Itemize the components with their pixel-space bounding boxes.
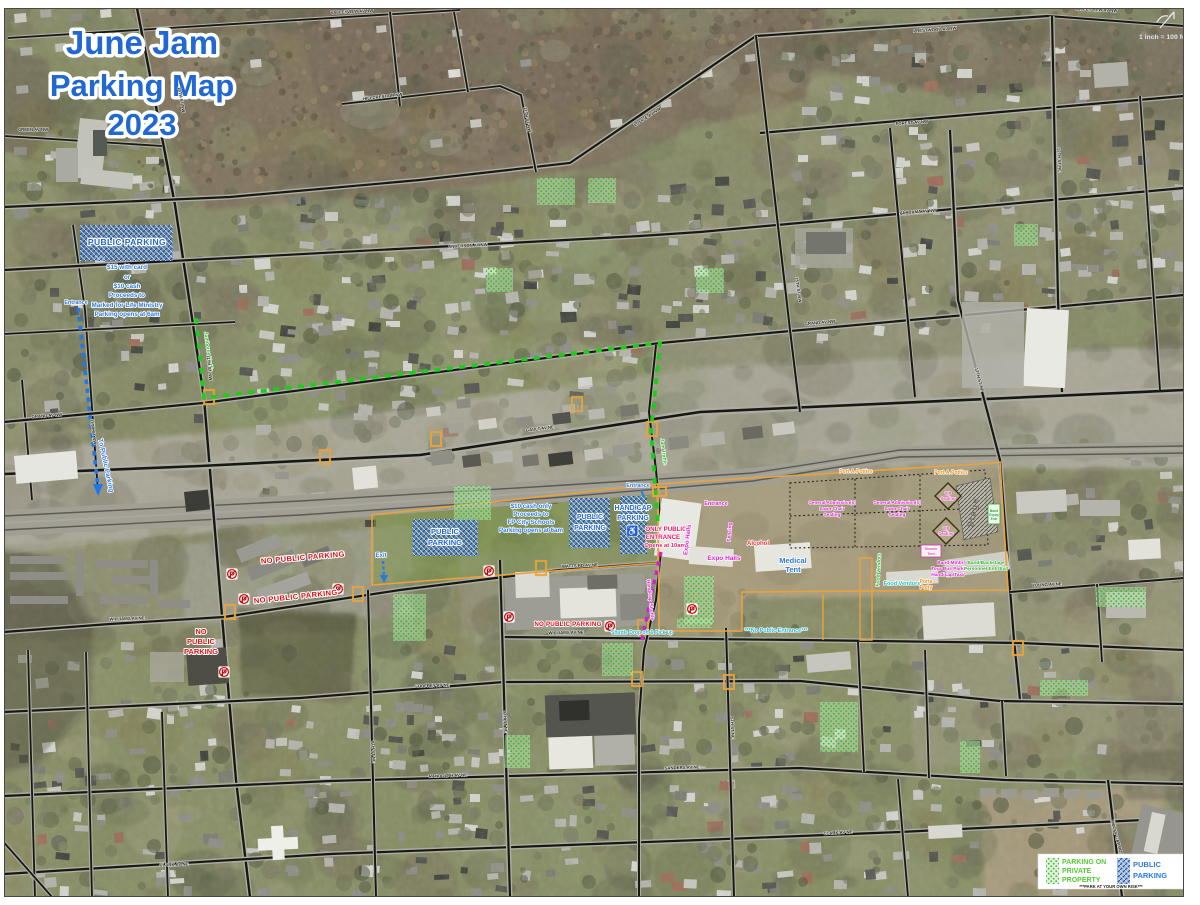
svg-text:$10 cash only: $10 cash only: [511, 503, 552, 510]
svg-text:Tent: Tent: [785, 565, 801, 574]
svg-text:PARKING: PARKING: [1133, 871, 1167, 880]
svg-text:PUBLIC: PUBLIC: [577, 514, 603, 521]
svg-text:***No Public Entrance***: ***No Public Entrance***: [744, 628, 808, 634]
svg-text:Tent: Tent: [927, 552, 935, 556]
svg-text:Port-A-Potties: Port-A-Potties: [839, 469, 873, 475]
svg-text:♿: ♿: [627, 525, 638, 536]
svg-text:NO PUBLIC PARKING: NO PUBLIC PARKING: [534, 621, 601, 628]
svg-text:$10 cash: $10 cash: [114, 283, 141, 290]
svg-text:PROPERTY: PROPERTY: [1062, 877, 1101, 884]
svg-text:PUBLIC PARKING: PUBLIC PARKING: [88, 237, 166, 247]
svg-text:PRIVATE: PRIVATE: [1062, 868, 1092, 875]
svg-text:Seating: Seating: [938, 531, 954, 536]
svg-text:Food Vendors: Food Vendors: [884, 581, 921, 587]
svg-text:General Admission(s): General Admission(s): [808, 500, 856, 505]
svg-text:1 inch = 100 feet: 1 inch = 100 feet: [1139, 34, 1192, 41]
svg-text:PUBLIC: PUBLIC: [1133, 860, 1162, 869]
svg-text:Lawn Chair: Lawn Chair: [885, 506, 910, 511]
svg-text:PUBLIC: PUBLIC: [187, 637, 216, 646]
svg-text:FP City Schools: FP City Schools: [508, 519, 556, 526]
svg-text:Parking opens at 6am: Parking opens at 6am: [499, 527, 563, 534]
svg-text:Shuttle Drop off & Pick up: Shuttle Drop off & Pick up: [611, 630, 673, 636]
svg-text:PUBLIC: PUBLIC: [431, 527, 460, 536]
svg-text:Entrance: Entrance: [626, 483, 650, 489]
svg-text:Medical: Medical: [779, 556, 807, 565]
svg-text:Parking Map: Parking Map: [50, 68, 234, 103]
svg-text:Parking opens at 6am: Parking opens at 6am: [94, 311, 159, 318]
svg-text:$15 with card: $15 with card: [107, 264, 147, 271]
svg-text:Seating: Seating: [824, 512, 841, 517]
svg-text:***PARK AT YOUR OWN RISK***: ***PARK AT YOUR OWN RISK***: [1079, 884, 1143, 889]
svg-text:Shower: Shower: [925, 547, 939, 551]
svg-text:Potty: Potty: [920, 585, 933, 591]
svg-text:2023: 2023: [108, 107, 177, 142]
svg-text:PARKING: PARKING: [184, 647, 218, 656]
svg-text:Expo Halls: Expo Halls: [707, 555, 741, 562]
svg-text:June Jam: June Jam: [66, 24, 218, 61]
svg-text:Proceeds to: Proceeds to: [109, 292, 145, 299]
svg-text:Band Mmbr/: Band Mmbr/: [937, 560, 965, 566]
svg-text:Exit: Exit: [375, 553, 386, 559]
svg-text:Handicap/Taxi/: Handicap/Taxi/: [931, 572, 965, 578]
svg-text:ENTRANCE: ENTRANCE: [646, 534, 680, 541]
svg-text:Opens at 10am: Opens at 10am: [644, 543, 685, 549]
svg-text:PARKING: PARKING: [617, 515, 649, 522]
svg-text:Proceeds to: Proceeds to: [513, 511, 549, 518]
svg-text:HANDICAP: HANDICAP: [615, 505, 652, 512]
svg-text:WILLIAMS AV NE: WILLIAMS AV NE: [548, 630, 583, 636]
svg-text:GREEN AV NW: GREEN AV NW: [18, 127, 49, 132]
svg-text:Alcohol: Alcohol: [747, 541, 769, 547]
svg-text:Entrance: Entrance: [64, 300, 88, 306]
svg-text:Band/Backstage: Band/Backstage: [967, 560, 1005, 566]
svg-text:PARKING: PARKING: [428, 538, 462, 547]
svg-text:CLARK AV NE: CLARK AV NE: [159, 861, 188, 867]
svg-text:NO: NO: [195, 627, 206, 636]
svg-text:Marked for Life Ministry: Marked for Life Ministry: [91, 302, 163, 309]
svg-text:PARKING ON: PARKING ON: [1062, 859, 1106, 866]
svg-text:Entrance: Entrance: [704, 501, 728, 507]
svg-text:Personnel Entr/Exit: Personnel Entr/Exit: [964, 566, 1009, 572]
svg-text:Seating: Seating: [889, 512, 906, 517]
svg-text:General Admission(s): General Admission(s): [873, 500, 921, 505]
svg-text:Seating: Seating: [940, 496, 956, 501]
svg-text:Entr: Entr: [991, 517, 998, 521]
svg-text:PARKING: PARKING: [574, 525, 606, 532]
svg-text:Port-A-Potties: Port-A-Potties: [934, 470, 968, 476]
svg-text:ONLY PUBLIC: ONLY PUBLIC: [645, 526, 687, 533]
svg-text:Lawn Chair: Lawn Chair: [820, 506, 845, 511]
svg-text:or: or: [124, 274, 131, 281]
